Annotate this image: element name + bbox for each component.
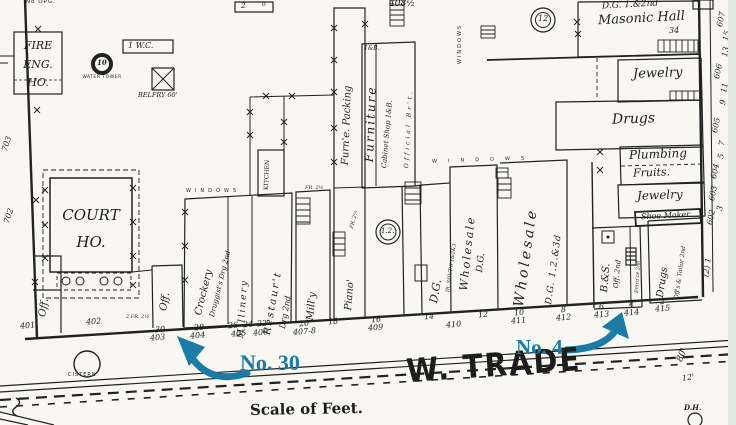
railroad-track — [0, 340, 736, 425]
street-number-411: 411 — [511, 316, 527, 325]
label-12ft: 12' — [681, 373, 694, 383]
label-no-opg: No OPG. — [26, 0, 56, 6]
street-number-406: 406 — [253, 328, 269, 337]
street-number-412: 412 — [556, 313, 572, 322]
street-number-401: 401 — [20, 321, 36, 330]
fire-line-2: ENG. — [23, 58, 53, 71]
map-circles — [74, 8, 702, 425]
label-box-2: 2 — [241, 3, 245, 10]
label-fr-c: 2 FR. 2½ — [126, 315, 149, 320]
label-dh: D.H. — [684, 404, 701, 411]
street-number-403: 403 — [150, 333, 166, 342]
label-fruits: Fruits. — [633, 166, 670, 179]
street-number-18: 18 — [328, 318, 339, 327]
street-number-414: 414 — [624, 308, 640, 317]
dh-icon — [688, 413, 702, 425]
court-line-2: HO. — [76, 233, 105, 251]
street-number-405: 405 — [231, 329, 247, 338]
street-number-402: 402 — [86, 317, 102, 326]
court-line-1: COURT — [62, 206, 119, 224]
label-plumbing: Plumbing — [629, 147, 687, 162]
street-number-14: 14 — [424, 313, 435, 322]
label-cistern: CISTERN — [68, 372, 97, 378]
label-jewelry-1: Jewelry — [633, 66, 683, 81]
label-408half: 408½ — [389, 0, 415, 9]
label-water-tower: WATER TOWER — [82, 75, 122, 80]
annotation-no4: No. 4 — [516, 337, 563, 358]
label-circle-12: 12 — [538, 15, 548, 23]
label-belfry: BELFRY 60' — [138, 92, 177, 99]
label-kitchen: KITCHEN — [264, 160, 271, 191]
label-jewelry-2: Jewelry — [637, 188, 683, 202]
label-water-tower-num: 10 — [97, 59, 107, 66]
label-fire-engine-house: FIRE ENG. HO. — [16, 37, 60, 93]
label-drugs-1: Drugs — [612, 111, 656, 127]
label-furniture: Furniture — [363, 85, 378, 162]
label-windows-1: WINDOWS — [186, 188, 240, 194]
belfry-icon — [152, 68, 174, 90]
street-number-413: 413 — [594, 310, 610, 319]
label-wholesale1-dg: D.G. — [476, 253, 487, 273]
label-windows-3: WINDOWS — [457, 24, 463, 64]
annotation-no30: No. 30 — [240, 352, 300, 374]
label-court-house: COURT HO. — [53, 202, 129, 256]
label-wc: 1 W.C. — [128, 42, 153, 50]
street-number-409: 409 — [368, 323, 384, 332]
label-box-o: o — [262, 2, 266, 8]
label-scale-of-feet: Scale of Feet. — [250, 401, 363, 419]
label-circle-1-2: 1.2. — [381, 228, 394, 235]
label-one-b: 1&B. — [364, 46, 379, 52]
label-fr-a: FR. 2½ — [305, 186, 323, 191]
fire-line-3: HO. — [27, 76, 48, 89]
scan-edge — [728, 0, 736, 425]
fire-line-1: FIRE — [24, 39, 52, 52]
street-number-415: 415 — [655, 304, 671, 313]
sanborn-map: No OPG. 2 o 408½ 12 FIRE ENG. HO. 10 WAT… — [0, 0, 736, 425]
street-number-404: 404 — [190, 331, 206, 340]
street-number-12: 12 — [478, 311, 489, 320]
label-masonic-34: 34 — [669, 27, 679, 35]
street-number-410: 410 — [446, 320, 462, 329]
